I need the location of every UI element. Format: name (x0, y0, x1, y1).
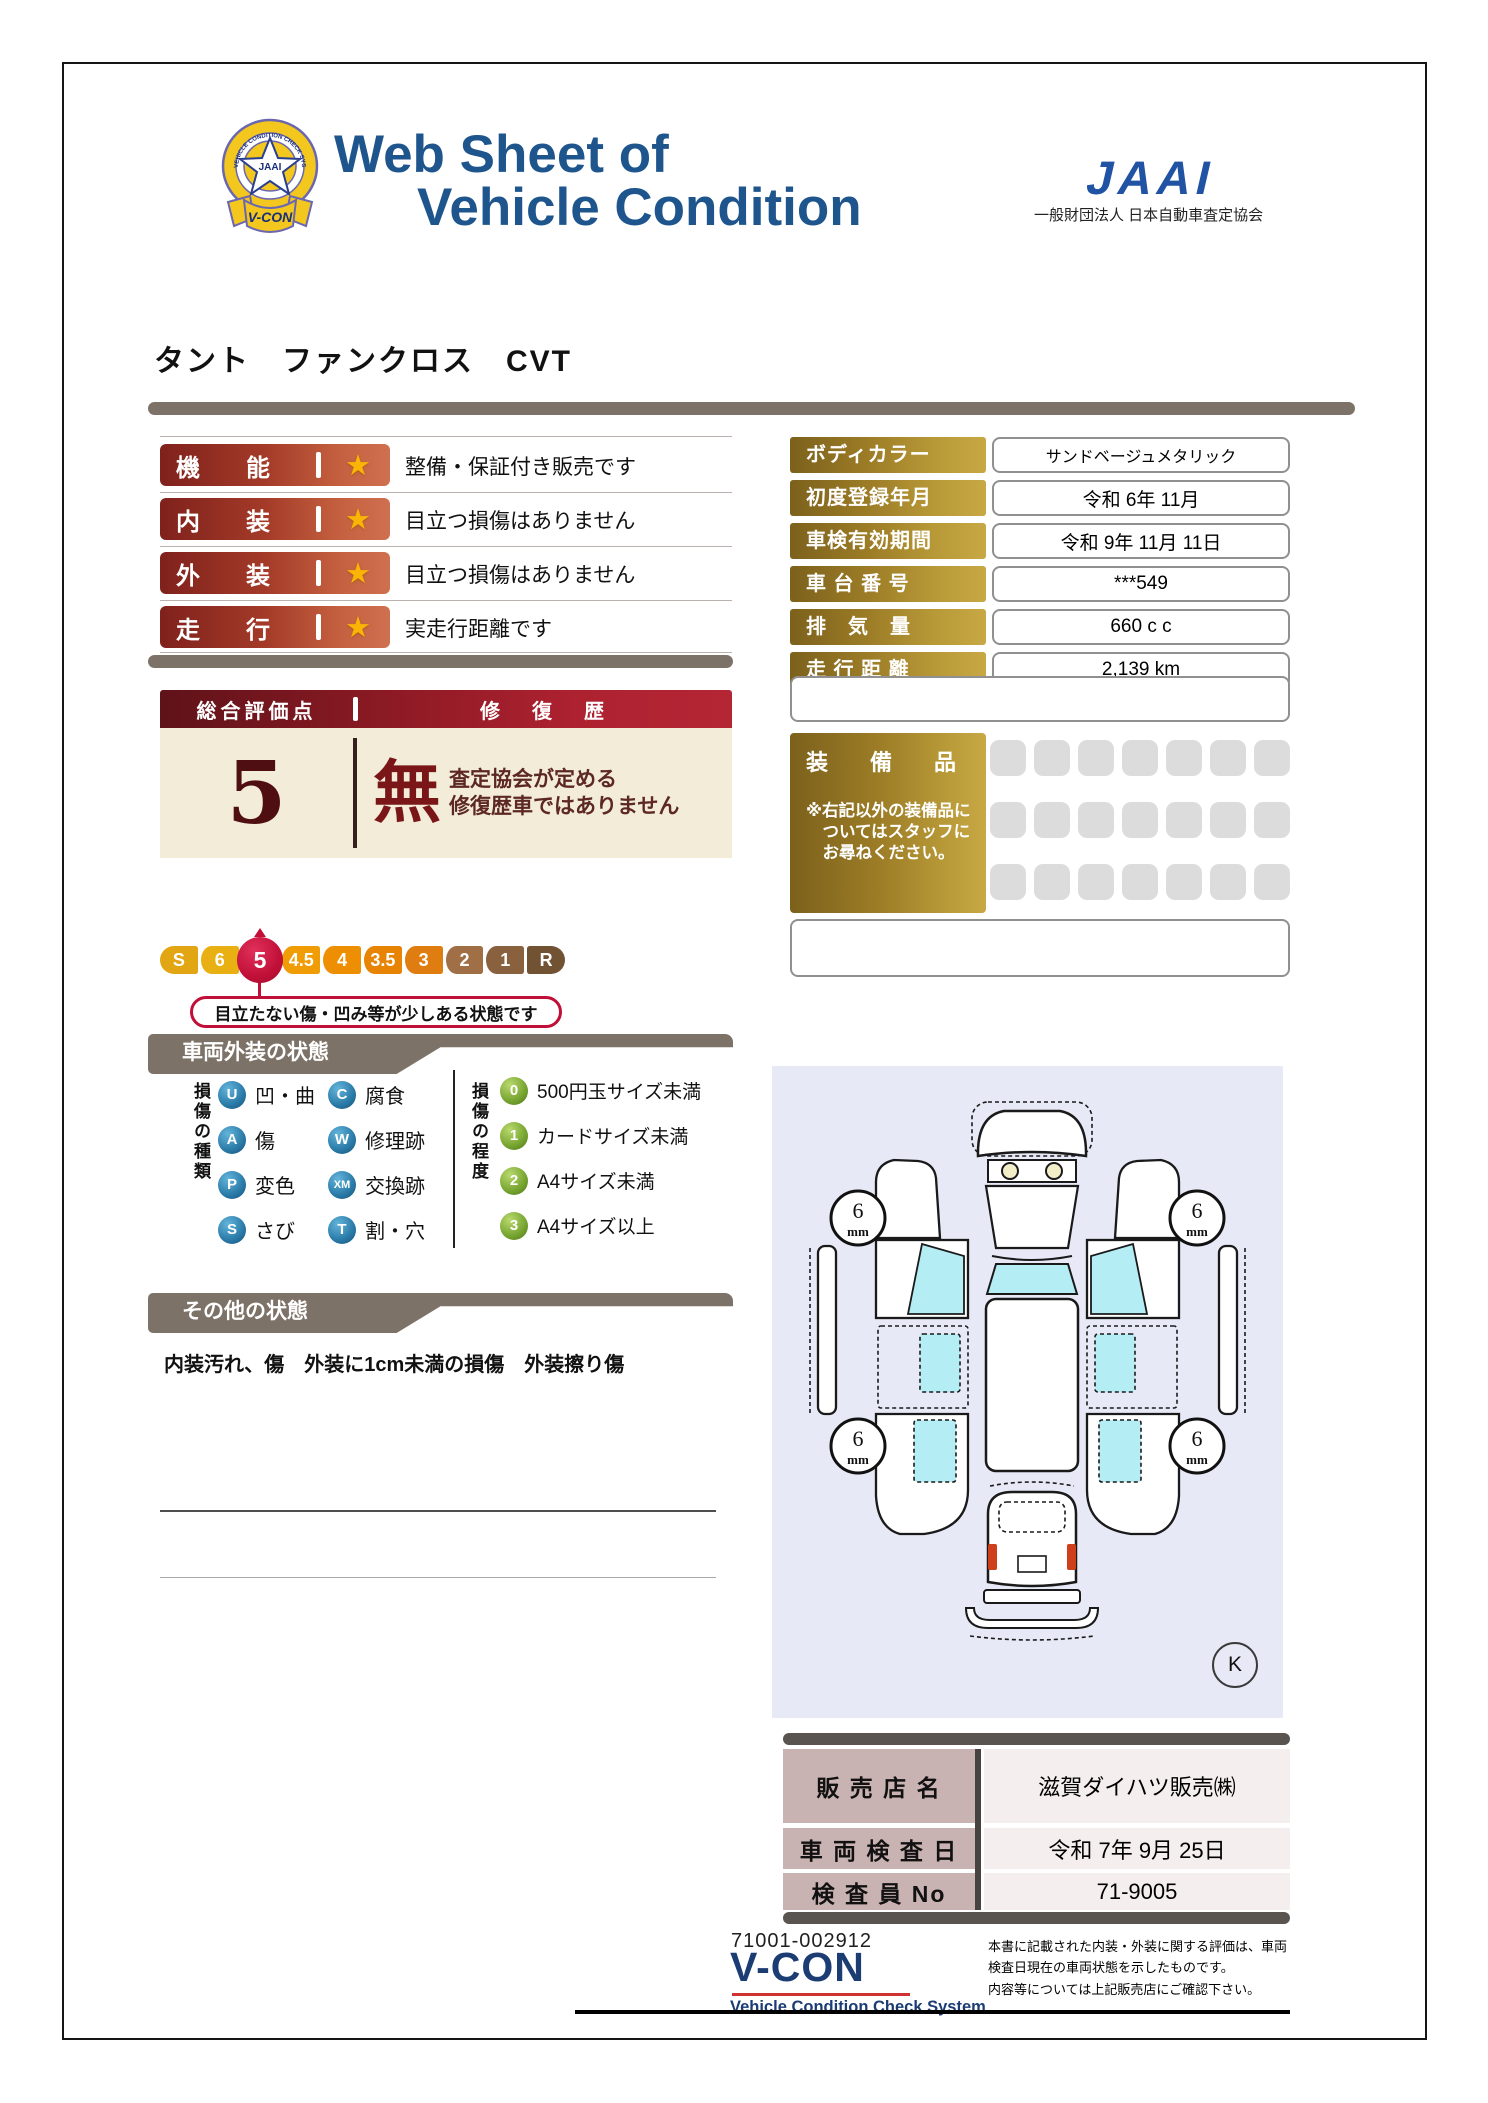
damage-code-badge: P (218, 1171, 246, 1199)
scale-segment: 4.5 (282, 946, 320, 974)
damage-code-badge: W (328, 1126, 356, 1154)
footer-rule (575, 2010, 1290, 2014)
pill-divider (316, 560, 321, 586)
equipment-slot (1078, 864, 1114, 900)
legend-item: 1 カードサイズ未満 (500, 1113, 701, 1158)
tire-depth-unit: mm (1186, 1452, 1208, 1467)
table-column-divider (975, 1749, 981, 1910)
legend-label: 腐食 (365, 1080, 405, 1109)
info-label-inspection-validity: 車検有効期間 (790, 523, 986, 559)
legend-item: S さび (218, 1207, 315, 1252)
scale-segment: 3 (405, 946, 443, 974)
damage-type-col1: U 凹・曲 A 傷 P 変色 S さび (218, 1072, 315, 1252)
roof-panel (986, 1299, 1078, 1471)
selected-score-pointer (254, 928, 266, 937)
overall-score-value: 5 (160, 728, 353, 858)
car-rear-view (966, 1482, 1098, 1640)
star-icon: ★ (345, 448, 371, 483)
info-value-displacement: 660 c c (992, 609, 1290, 645)
info-value-first-registration: 令和 6年 11月 (992, 480, 1290, 516)
equipment-slot (1166, 864, 1202, 900)
overall-score-title: 総合評価点 (160, 695, 353, 724)
damage-code-badge: A (218, 1126, 246, 1154)
rating-label: 外装 (176, 556, 316, 591)
rating-desc: 整備・保証付き販売です (405, 451, 636, 481)
dealer-name-value: 滋賀ダイハツ販売㈱ (984, 1749, 1290, 1823)
disclaimer-line3: 内容等については上記販売店にご確認下さい。 (988, 1979, 1318, 2000)
vcon-logo: V-CON (730, 1947, 865, 1988)
damage-code-badge: C (328, 1081, 356, 1109)
equipment-slot (1166, 740, 1202, 776)
repair-desc-line2: 修復歴車ではありません (449, 793, 679, 820)
equipment-title: 装 備 品 (806, 745, 986, 777)
scale-segment: 2 (446, 946, 484, 974)
tire-depth-unit: mm (847, 1224, 869, 1239)
equipment-slot (1122, 802, 1158, 838)
inspection-date-label: 車 両 検 査 日 (783, 1828, 975, 1869)
damage-code-badge: XM (328, 1171, 356, 1199)
equipment-slot (990, 802, 1026, 838)
damage-type-col2: C 腐食 W 修理跡 XM 交換跡 T 割・穴 (328, 1072, 425, 1252)
inspector-no-value: 71-9005 (984, 1873, 1290, 1910)
overall-score-header: 総合評価点 修 復 歴 (160, 690, 732, 728)
degree-code-badge: 1 (500, 1122, 528, 1150)
star-icon: ★ (345, 502, 371, 537)
legend-item: XM 交換跡 (328, 1162, 425, 1207)
vehicle-title: タント ファンクロス CVT (154, 336, 572, 380)
legend-label: A4サイズ未満 (537, 1167, 655, 1194)
info-value-chassis-number: ***549 (992, 566, 1290, 602)
other-condition-note: 内装汚れ、傷 外装に1cm未満の損傷 外装擦り傷 (164, 1348, 624, 1377)
score-callout: 目立たない傷・凹み等が少しある状態です (190, 996, 562, 1028)
rating-label: 内装 (176, 502, 316, 537)
jaai-organization: 一般財団法人 日本自動車査定協会 (1034, 204, 1263, 225)
damage-type-label: 損傷の種類 (188, 1082, 213, 1182)
rating-pill-mileage: 走行 ★ (160, 606, 390, 648)
overall-score-body: 5 無 査定協会が定める 修復歴車ではありません (160, 728, 732, 858)
rating-pill-interior: 内装 ★ (160, 498, 390, 540)
info-label-bodycolor: ボディカラー (790, 437, 986, 473)
legend-label: さび (255, 1215, 295, 1244)
pill-divider (316, 452, 321, 478)
star-icon: ★ (345, 610, 371, 645)
equipment-grid (990, 740, 1290, 906)
taillight-icon (1067, 1544, 1076, 1570)
info-label-first-registration: 初度登録年月 (790, 480, 986, 516)
legend-label: 傷 (255, 1125, 275, 1154)
damage-code-badge: U (218, 1081, 246, 1109)
rating-label: 機能 (176, 448, 316, 483)
empty-note-box (790, 676, 1290, 722)
tire-depth-value: 6 (853, 1426, 864, 1451)
legend-label: 変色 (255, 1170, 295, 1199)
equipment-slot (1122, 864, 1158, 900)
legend-label: A4サイズ以上 (537, 1212, 655, 1239)
tire-depth-value: 6 (853, 1198, 864, 1223)
legend-item: 3 A4サイズ以上 (500, 1203, 701, 1248)
rating-desc: 目立つ損傷はありません (405, 505, 635, 535)
degree-code-badge: 0 (500, 1077, 528, 1105)
pill-divider (316, 506, 321, 532)
table-top-bar (783, 1733, 1290, 1745)
rating-pill-exterior: 外装 ★ (160, 552, 390, 594)
damage-degree-col: 0 500円玉サイズ未満 1 カードサイズ未満 2 A4サイズ未満 3 A4サイ… (500, 1068, 701, 1248)
vcon-logo-subtitle: Vehicle Condition Check System (730, 1998, 986, 2017)
equipment-slot (1034, 864, 1070, 900)
car-front-top-view (972, 1102, 1092, 1471)
degree-code-badge: 2 (500, 1167, 528, 1195)
legend-item: 2 A4サイズ未満 (500, 1158, 701, 1203)
empty-note-box (790, 919, 1290, 977)
note-rule-line (160, 1577, 716, 1578)
equipment-slot (1078, 740, 1114, 776)
key-mark: K (1212, 1642, 1258, 1688)
divider-bar (148, 655, 733, 668)
scale-segment: 1 (486, 946, 524, 974)
repair-history-desc: 査定協会が定める 修復歴車ではありません (449, 766, 679, 821)
legend-item: 0 500円玉サイズ未満 (500, 1068, 701, 1113)
license-plate (1018, 1556, 1046, 1572)
row-separator (160, 652, 732, 653)
sheet-title-line2: Vehicle Condition (417, 177, 862, 238)
legend-item: U 凹・曲 (218, 1072, 315, 1117)
legend-item: P 変色 (218, 1162, 315, 1207)
equipment-slot (1122, 740, 1158, 776)
info-label-chassis-number: 車 台 番 号 (790, 566, 986, 602)
footer-disclaimer: 本書に記載された内装・外装に関する評価は、車両 検査日現在の車両状態を示したもの… (988, 1936, 1318, 2000)
rating-desc: 目立つ損傷はありません (405, 559, 635, 589)
legend-label: 割・穴 (365, 1215, 425, 1244)
scale-segment: 4 (323, 946, 361, 974)
equipment-slot (1078, 802, 1114, 838)
emblem-jaai-text: JAAI (259, 162, 282, 173)
scale-segment: S (160, 946, 198, 974)
emblem-vcon-text: V-CON (248, 209, 293, 225)
legend-item: A 傷 (218, 1117, 315, 1162)
headlight-icon (1002, 1163, 1018, 1179)
row-separator (160, 492, 732, 493)
repair-history-value: 無 (373, 759, 441, 827)
info-value-bodycolor: サンドベージュメタリック (992, 437, 1290, 473)
equipment-slot (1210, 864, 1246, 900)
equipment-panel: 装 備 品 ※右記以外の装備品に ついてはスタッフに お尋ねください。 (790, 733, 986, 913)
disclaimer-line1: 本書に記載された内装・外装に関する評価は、車両 (988, 1936, 1318, 1957)
damage-code-badge: T (328, 1216, 356, 1244)
legend-item: W 修理跡 (328, 1117, 425, 1162)
rating-desc: 実走行距離です (405, 613, 552, 643)
dealer-name-label: 販 売 店 名 (783, 1749, 975, 1823)
tire-depth-unit: mm (1186, 1224, 1208, 1239)
inspection-date-value: 令和 7年 9月 25日 (984, 1828, 1290, 1869)
scale-segment: 6 (201, 946, 239, 974)
tire-depth-unit: mm (847, 1452, 869, 1467)
sheet-title-line1: Web Sheet of (334, 124, 669, 185)
degree-code-badge: 3 (500, 1212, 528, 1240)
equipment-slot (990, 740, 1026, 776)
scale-segment: R (527, 946, 565, 974)
vehicle-condition-sheet: VEHICLE CONDITION CHECK SYSTEM JAAI V-CO… (0, 0, 1488, 2103)
taillight-icon (988, 1544, 997, 1570)
legend-label: 500円玉サイズ未満 (537, 1077, 701, 1104)
disclaimer-line2: 検査日現在の車両状態を示したものです。 (988, 1957, 1318, 1978)
note-rule-line (160, 1510, 716, 1512)
legend-label: 交換跡 (365, 1170, 425, 1199)
equipment-note: ※右記以外の装備品に ついてはスタッフに お尋ねください。 (806, 801, 986, 864)
tire-depth-value: 6 (1192, 1426, 1203, 1451)
damage-code-badge: S (218, 1216, 246, 1244)
legend-item: C 腐食 (328, 1072, 425, 1117)
legend-label: 修理跡 (365, 1125, 425, 1154)
damage-degree-label: 損傷の程度 (466, 1082, 491, 1182)
tire-depth-value: 6 (1192, 1198, 1203, 1223)
row-separator (160, 436, 732, 437)
legend-divider (453, 1070, 455, 1248)
equipment-slot (1254, 802, 1290, 838)
headlight-icon (1046, 1163, 1062, 1179)
repair-history-title: 修 復 歴 (358, 695, 732, 724)
divider-bar (148, 402, 1355, 415)
row-separator (160, 546, 732, 547)
info-value-inspection-validity: 令和 9年 11月 11日 (992, 523, 1290, 559)
equipment-slot (1034, 740, 1070, 776)
equipment-slot (990, 864, 1026, 900)
vcon-logo-underline (732, 1993, 910, 1996)
pill-divider (316, 614, 321, 640)
selected-score-marker: 5 (237, 937, 283, 983)
equipment-slot (1034, 802, 1070, 838)
equipment-slot (1254, 864, 1290, 900)
repair-desc-line1: 査定協会が定める (449, 766, 679, 793)
legend-label: カードサイズ未満 (537, 1122, 688, 1149)
jaai-logo: JAAI (1082, 150, 1222, 205)
equipment-slot (1166, 802, 1202, 838)
selected-score-stem (258, 982, 261, 999)
legend-label: 凹・曲 (255, 1080, 315, 1109)
row-separator (160, 600, 732, 601)
car-exterior-diagram: 6 mm 6 mm 6 mm 6 mm (772, 1066, 1283, 1718)
inspector-no-label: 検 査 員 No (783, 1873, 975, 1910)
info-label-displacement: 排 気 量 (790, 609, 986, 645)
legend-item: T 割・穴 (328, 1207, 425, 1252)
table-bottom-bar (783, 1912, 1290, 1924)
score-scale: S 6 5 4.5 4 3.5 3 2 1 R (160, 946, 565, 974)
scale-segment: 3.5 (364, 946, 402, 974)
vcon-emblem-icon: VEHICLE CONDITION CHECK SYSTEM JAAI V-CO… (214, 116, 326, 244)
rating-pill-function: 機能 ★ (160, 444, 390, 486)
windshield (987, 1264, 1077, 1294)
equipment-slot (1210, 802, 1246, 838)
equipment-slot (1254, 740, 1290, 776)
equipment-slot (1210, 740, 1246, 776)
rating-label: 走行 (176, 610, 316, 645)
star-icon: ★ (345, 556, 371, 591)
